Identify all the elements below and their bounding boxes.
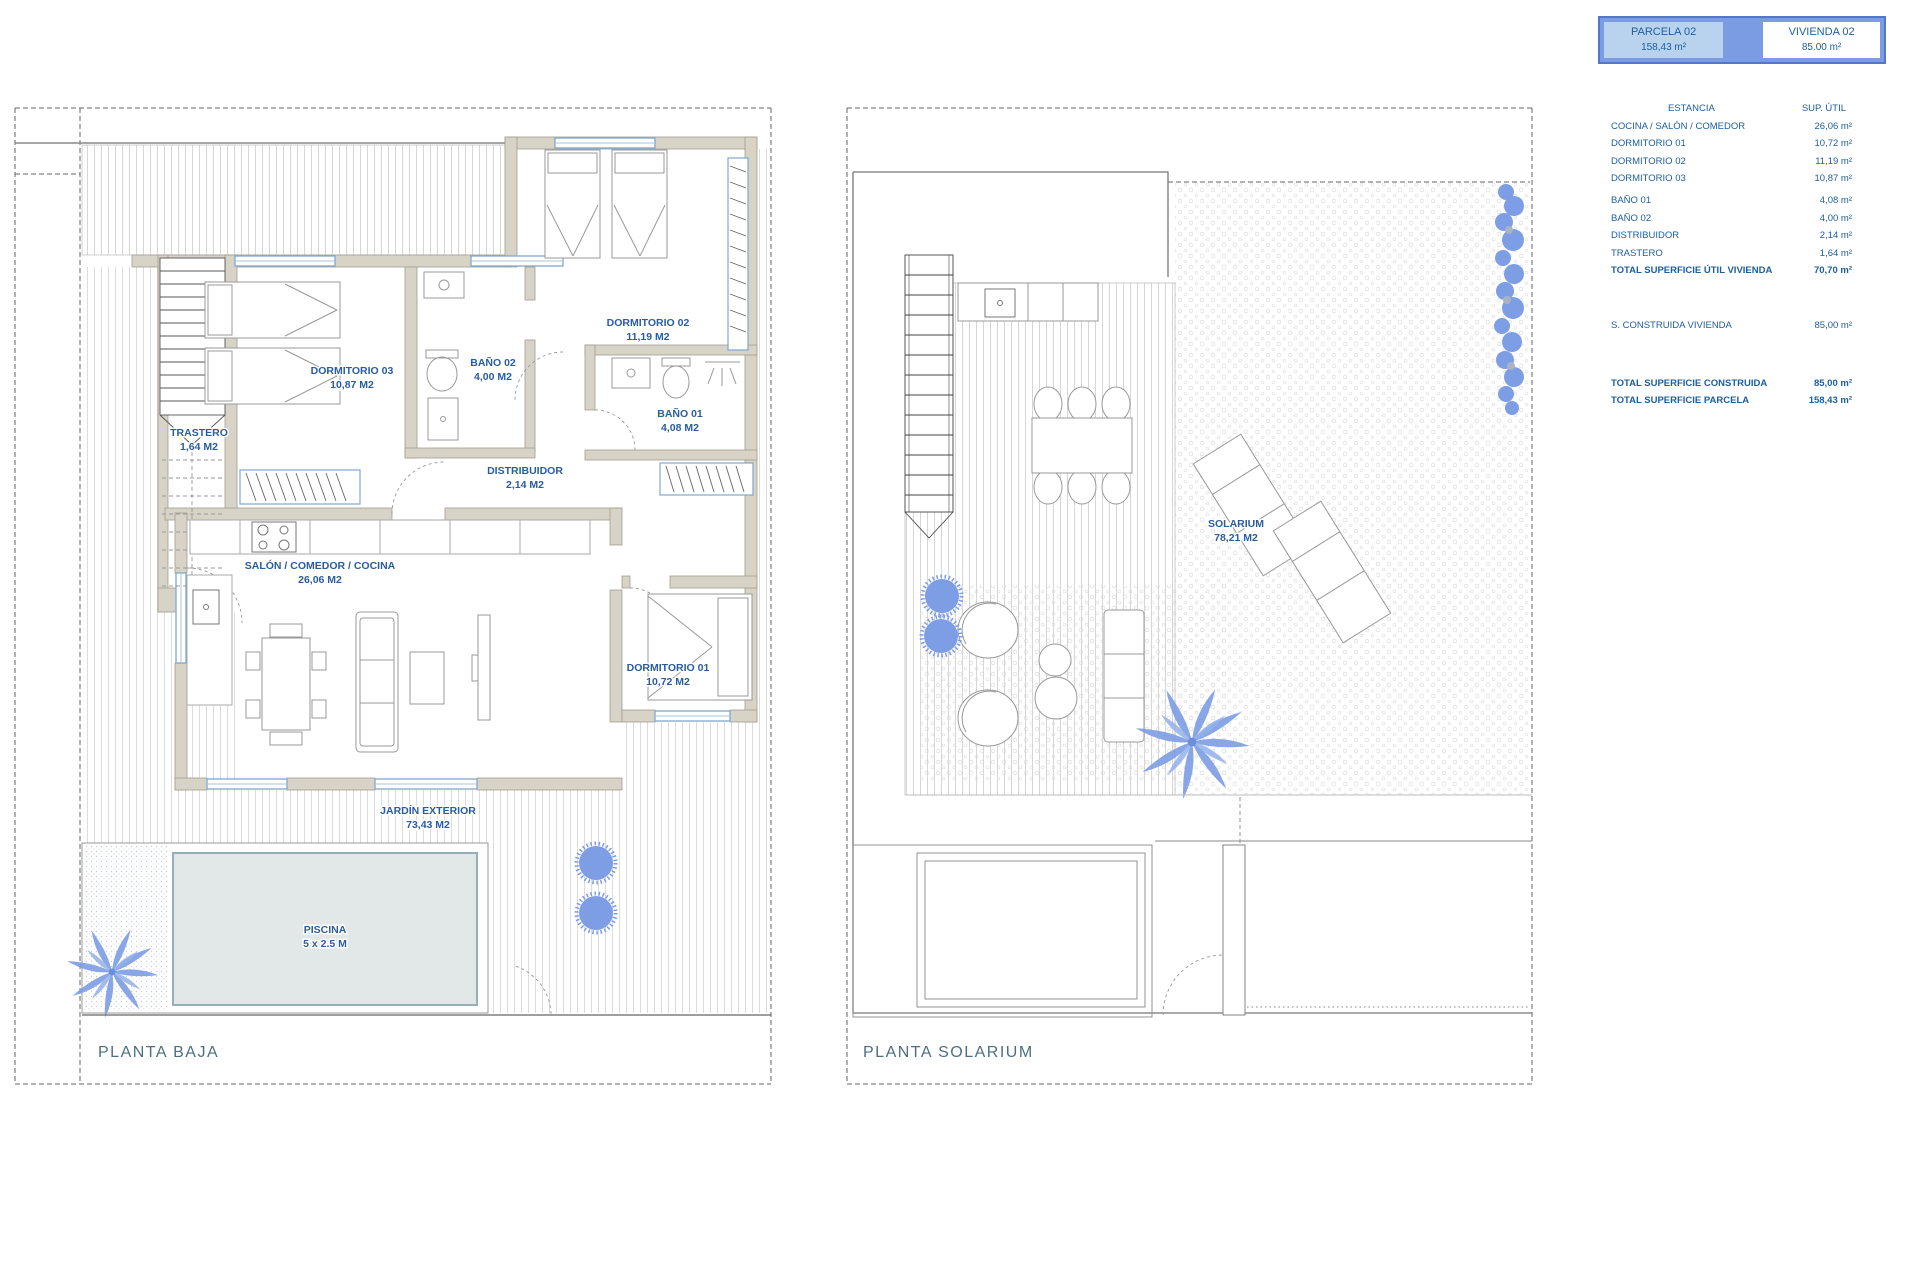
label-dormitorio1-area: 10,72 M2 [646,676,690,688]
floor-plan-sheet: TRASTERO 1,64 M2 DORMITORIO 03 10,87 M2 … [0,0,1920,1280]
row-label: TRASTERO [1598,245,1663,263]
row-label: COCINA / SALÓN / COMEDOR [1598,118,1745,136]
summary-header: PARCELA 02 158,43 m² VIVIENDA 02 85.00 m… [1598,16,1886,64]
total-constructed-row: TOTAL SUPERFICIE CONSTRUIDA 85,00 m² [1598,375,1886,393]
label-bano1: BAÑO 01 [657,407,703,420]
col-estancia: ESTANCIA [1598,100,1715,118]
vivienda-area: 85.00 m² [1802,41,1841,56]
solarium-title: PLANTA SOLARIUM [863,1044,1034,1061]
entrance-porch [15,143,511,255]
row-value: 10,87 m² [1815,170,1887,188]
parcela-cell: PARCELA 02 158,43 m² [1604,22,1723,58]
bathroom1-fixtures [612,358,740,398]
row-label: TOTAL SUPERFICIE CONSTRUIDA [1598,375,1767,393]
label-jardin-area: 73,43 M2 [406,819,450,831]
tv-unit [472,615,490,720]
pool-area [82,843,488,1013]
label-dormitorio2: DORMITORIO 02 [607,317,690,329]
table-header-row: ESTANCIA SUP. ÚTIL [1598,100,1886,118]
areas-table: ESTANCIA SUP. ÚTIL COCINA / SALÓN / COME… [1598,100,1886,410]
header-divider [1723,22,1763,58]
label-trastero: TRASTERO [170,427,228,439]
summary-panel: PARCELA 02 158,43 m² VIVIENDA 02 85.00 m… [1598,16,1886,410]
row-value: 10,72 m² [1815,135,1887,153]
bedroom2-wardrobe [728,158,748,350]
row-value: 85,00 m² [1814,375,1886,393]
row-label: BAÑO 02 [1598,210,1651,228]
row-value: 26,06 m² [1815,118,1887,136]
dining-table [246,624,326,745]
label-distribuidor-area: 2,14 M2 [506,479,544,491]
hall-closet [660,463,753,495]
solarium-kitchenette [958,283,1098,321]
table-row: COCINA / SALÓN / COMEDOR 26,06 m² [1598,118,1886,136]
lower-floor-outline [853,795,1532,1017]
row-label: TOTAL SUPERFICIE ÚTIL VIVIENDA [1598,262,1772,280]
row-label: DORMITORIO 03 [1598,170,1686,188]
ground-floor-title: PLANTA BAJA [98,1044,219,1061]
label-trastero-area: 1,64 M2 [180,441,218,453]
label-distribuidor: DISTRIBUIDOR [487,465,563,477]
row-label: S. CONSTRUIDA VIVIENDA [1598,317,1732,335]
label-piscina-area: 5 x 2.5 M [303,938,347,950]
table-row: DISTRIBUIDOR 2,14 m² [1598,227,1886,245]
row-value: 85,00 m² [1815,317,1887,335]
bedroom3-wardrobe [240,470,360,504]
label-salon-area: 26,06 M2 [298,574,342,586]
constructed-row: S. CONSTRUIDA VIVIENDA 85,00 m² [1598,317,1886,335]
vivienda-cell: VIVIENDA 02 85.00 m² [1763,22,1880,58]
row-value: 4,08 m² [1820,192,1886,210]
label-piscina: PISCINA [304,924,347,936]
table-row: DORMITORIO 03 10,87 m² [1598,170,1886,188]
sofa [356,612,398,752]
label-salon: SALÓN / COMEDOR / COCINA [245,559,396,572]
parcela-area: 158,43 m² [1641,41,1686,56]
ground-floor-plan: TRASTERO 1,64 M2 DORMITORIO 03 10,87 M2 … [15,137,771,1061]
label-bano1-area: 4,08 M2 [661,422,699,434]
parcela-label: PARCELA 02 [1631,25,1696,41]
label-dormitorio3: DORMITORIO 03 [311,365,394,377]
row-label: DORMITORIO 01 [1598,135,1686,153]
row-label: BAÑO 01 [1598,192,1651,210]
row-value: 70,70 m² [1814,262,1886,280]
solarium-plan: SOLARIUM 78,21 M2 PLANTA SOLARIUM [853,172,1532,1061]
row-value: 1,64 m² [1820,245,1886,263]
row-value: 4,00 m² [1820,210,1886,228]
solarium-dining-set [1032,387,1132,504]
total-parcel-row: TOTAL SUPERFICIE PARCELA 158,43 m² [1598,392,1886,410]
bedroom2-beds [545,150,667,258]
col-sup-util: SUP. ÚTIL [1802,100,1886,118]
table-row: DORMITORIO 01 10,72 m² [1598,135,1886,153]
label-dormitorio2-area: 11,19 M2 [626,331,669,343]
row-value: 11,19 m² [1815,153,1886,171]
label-bano2-area: 4,00 M2 [474,371,512,383]
row-label: DORMITORIO 02 [1598,153,1686,171]
label-solarium-area: 78,21 M2 [1214,532,1258,544]
bathroom2-fixtures [424,272,464,440]
row-label: TOTAL SUPERFICIE PARCELA [1598,392,1749,410]
label-bano2: BAÑO 02 [470,356,516,369]
label-dormitorio1: DORMITORIO 01 [627,662,710,674]
row-label: DISTRIBUIDOR [1598,227,1679,245]
solarium-staircase [905,255,953,538]
table-row: BAÑO 01 4,08 m² [1598,192,1886,210]
total-util-row: TOTAL SUPERFICIE ÚTIL VIVIENDA 70,70 m² [1598,262,1886,280]
label-dormitorio3-area: 10,87 M2 [330,379,374,391]
coffee-table [410,652,444,704]
label-jardin: JARDÍN EXTERIOR [380,804,476,817]
row-value: 158,43 m² [1809,392,1886,410]
table-row: DORMITORIO 02 11,19 m² [1598,153,1886,171]
row-value: 2,14 m² [1820,227,1886,245]
vivienda-label: VIVIENDA 02 [1789,25,1855,41]
label-solarium: SOLARIUM [1208,518,1264,530]
table-row: TRASTERO 1,64 m² [1598,245,1886,263]
table-row: BAÑO 02 4,00 m² [1598,210,1886,228]
